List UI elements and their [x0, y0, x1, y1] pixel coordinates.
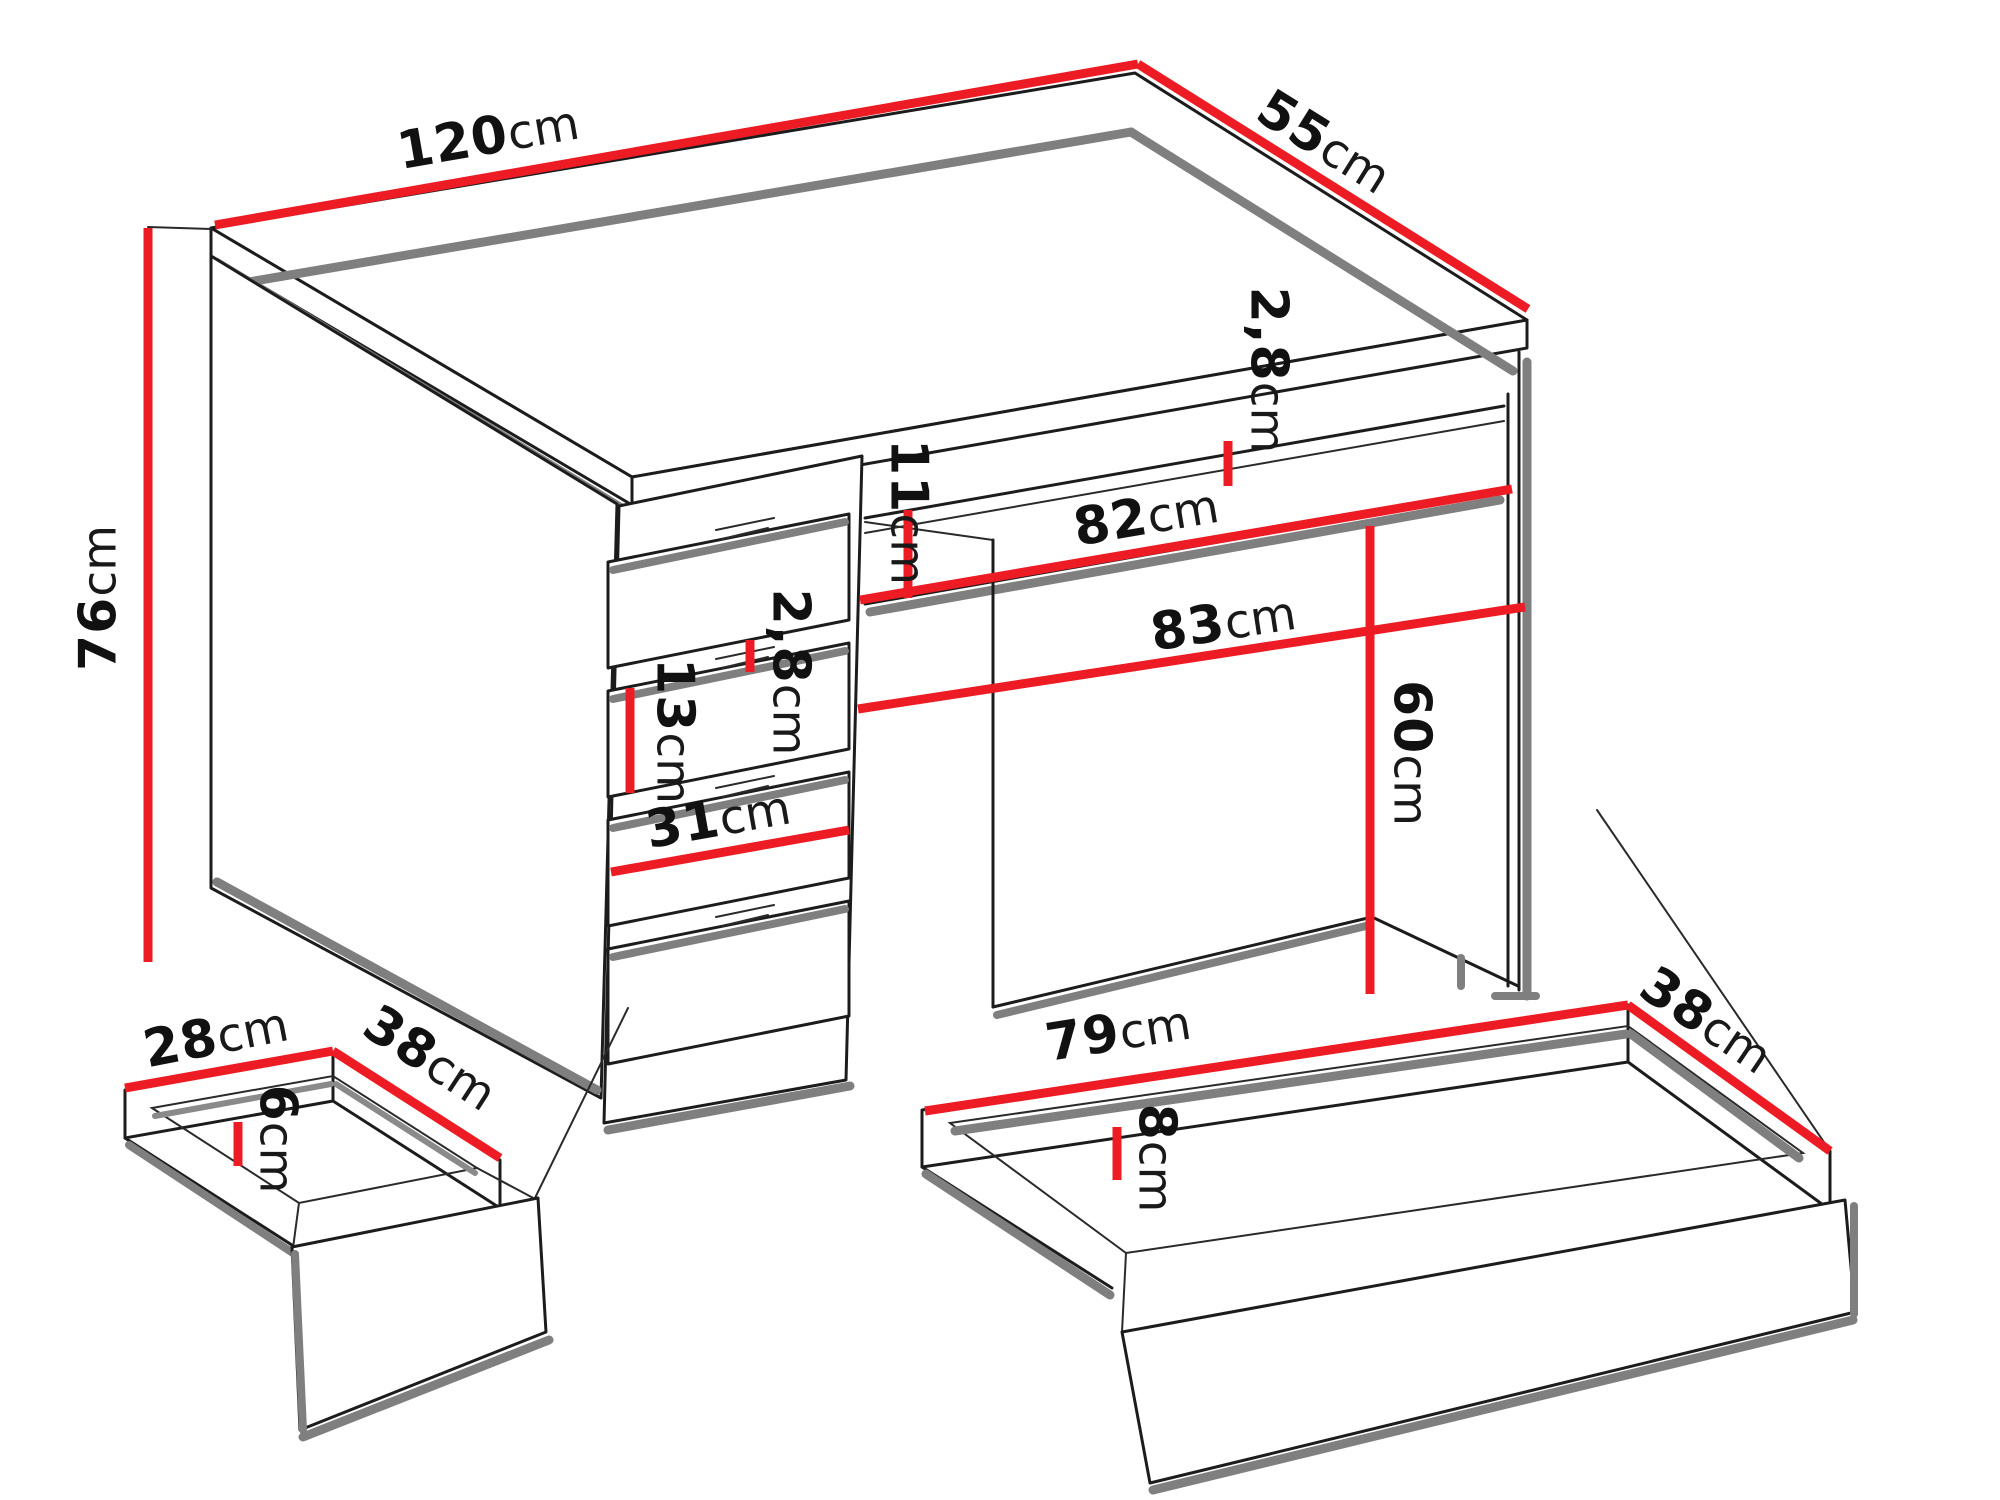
label-large-drawer-width: 79cm: [1041, 992, 1195, 1074]
kneehole-right-bottom-edge: [1372, 917, 1518, 986]
label-small-drawer-height: 6cm: [247, 1085, 307, 1194]
label-drawer-front-height: 13cm: [644, 658, 704, 804]
right-side-panel: [1461, 352, 1536, 996]
dim-extension-desk-height: [148, 227, 211, 229]
label-large-drawer-height: 8cm: [1126, 1104, 1186, 1213]
label-apron-height: 11cm: [878, 439, 938, 585]
large-drawer-side-rail: [1122, 1253, 1126, 1332]
kneehole-back-bottom-edge: [993, 917, 1372, 1007]
label-top-thickness: 2,8cm: [1238, 287, 1298, 454]
label-drawer-front-thickness: 2,8cm: [760, 589, 820, 756]
label-kneehole-width: 83cm: [1147, 582, 1300, 663]
large-drawer-front-panel: [1122, 1200, 1855, 1483]
small-drawer-side-rail: [293, 1203, 299, 1248]
diagram-canvas: 120cm 55cm 76cm 2,8cm 11cm 82cm 83cm 60c…: [0, 0, 2000, 1500]
large-drawer-drawing: [922, 810, 1855, 1490]
label-desk-height: 76cm: [69, 525, 129, 671]
label-kneehole-height: 60cm: [1381, 680, 1441, 826]
large-drawer-left-bottom-shadow: [926, 1174, 1110, 1295]
